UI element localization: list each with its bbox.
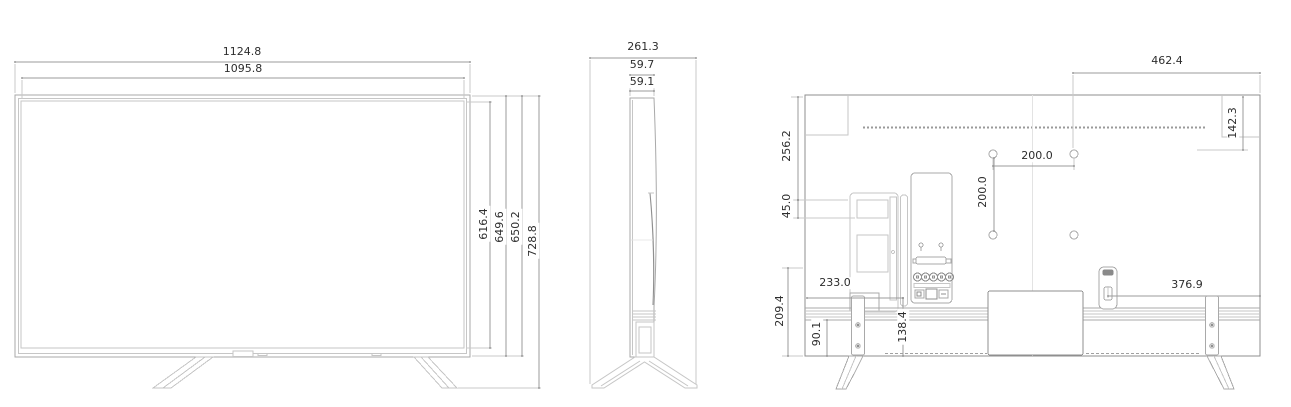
dim-label-back-holder-to-edge: 376.9 <box>1169 279 1205 291</box>
dim-label-front-height-inner: 616.4 <box>478 206 490 242</box>
cable-holder-cap <box>1103 270 1114 276</box>
dim-label-back-jacks-from-left: 233.0 <box>817 277 853 289</box>
dim-label-back-rail-section: 90.1 <box>811 320 823 349</box>
dim-label-front-height-total: 728.8 <box>527 223 539 259</box>
dim-label-side-thickness-inner: 59.1 <box>628 76 657 88</box>
dim-label-back-vesa-to-edge: 462.4 <box>1149 55 1185 67</box>
front-logo-box <box>233 351 253 357</box>
vesa-hole-bottom-right <box>1070 231 1078 239</box>
front-view-drawing <box>15 95 470 388</box>
vesa-hole-top-right <box>1070 150 1078 158</box>
front-left-foot <box>153 357 213 388</box>
front-tv-outline <box>15 95 470 357</box>
dim-label-back-jacks-from-bottom: 138.4 <box>897 309 909 345</box>
dim-label-side-depth-total: 261.3 <box>625 41 661 53</box>
dim-label-front-height-mid: 649.6 <box>494 209 506 245</box>
dim-label-back-top-to-vesa: 142.3 <box>1227 105 1239 141</box>
tv-dimensions-diagram: 1124.8 1095.8 616.4 649.6 650.2 728.8 26… <box>0 0 1291 407</box>
dim-label-back-vesa-vertical: 200.0 <box>977 174 989 210</box>
vesa-hole-bottom-left <box>989 231 997 239</box>
dim-label-side-thickness-outer: 59.7 <box>628 59 657 71</box>
back-view-drawing <box>805 95 1260 389</box>
dim-label-front-height-body: 650.2 <box>510 209 522 245</box>
dim-label-front-width-outer: 1124.8 <box>221 46 264 58</box>
back-right-foot <box>1207 356 1234 389</box>
dim-label-back-module-offset: 45.0 <box>781 192 793 221</box>
side-stand-foot <box>592 357 697 388</box>
vesa-hole-top-left <box>989 150 997 158</box>
back-center-box <box>988 291 1083 355</box>
dim-label-back-bottom-section: 209.4 <box>774 293 786 329</box>
dim-label-front-width-inner: 1095.8 <box>222 63 265 75</box>
dim-label-back-vesa-horizontal: 200.0 <box>1019 150 1055 162</box>
dim-label-back-top-to-module: 256.2 <box>781 128 793 164</box>
side-view-drawing <box>592 98 697 388</box>
